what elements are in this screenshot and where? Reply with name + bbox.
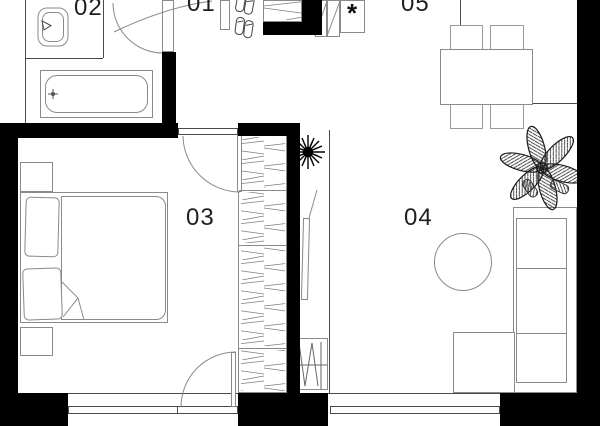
toilet-niche-wall-h [25, 58, 103, 59]
slipper [549, 179, 570, 195]
toilet [38, 8, 68, 46]
utility-marker: * [340, 0, 364, 29]
wall-bathroom-west [25, 0, 26, 123]
panel-closet-right [327, 0, 340, 37]
nightstand-bottom [20, 327, 53, 356]
toilet-niche-wall-v [103, 0, 104, 58]
dining-chair [490, 25, 524, 51]
wall-hall-closet-v [302, 0, 322, 35]
hanging-closet [263, 0, 302, 22]
sofa-seat-divider [516, 333, 567, 334]
door-leaf-bedroom [237, 135, 242, 192]
wardrobe-divider [239, 348, 286, 349]
plant-large-icon [498, 124, 585, 211]
wardrobe-column [238, 135, 287, 393]
tv-mount-line [309, 190, 317, 218]
room-label-01: 01 [187, 0, 216, 18]
wall-right-exterior [577, 0, 600, 426]
wardrobe-divider [239, 190, 286, 191]
room-label-05: 05 [401, 0, 430, 18]
zone-line-dining-h [533, 103, 577, 104]
window-bedroom [68, 406, 178, 414]
pillow [22, 267, 63, 320]
tv-strip-line [329, 130, 330, 393]
pillow [24, 197, 60, 258]
dining-chair [450, 25, 483, 51]
wall-tv [301, 218, 310, 300]
nightstand-top [20, 162, 53, 192]
floor-plan: 02 01 05 03 04 * [0, 0, 600, 426]
door-threshold-balcony [177, 406, 238, 414]
door-leaf-entrance [220, 0, 230, 30]
door-arc-bathroom [113, 3, 163, 53]
door-arc-bedroom [183, 136, 240, 192]
sofa-seat-divider [516, 268, 567, 269]
bathtub-inner [45, 75, 148, 113]
door-jamb-bathroom [162, 0, 174, 52]
wall-bathroom-south [18, 123, 178, 138]
bed-duvet [61, 196, 166, 320]
door-leaf-balcony [231, 352, 236, 407]
wall-stub-bathroom-hall [162, 52, 176, 123]
room-label-04: 04 [404, 204, 433, 232]
shoes-pair [235, 0, 255, 15]
door-threshold-bedroom [178, 128, 238, 135]
wardrobe-divider [239, 245, 286, 246]
shoes-pair [234, 17, 253, 38]
slipper [521, 178, 539, 199]
wall-pier-bottom-left [0, 393, 68, 426]
dining-table [440, 49, 533, 105]
wall-wardrobe-east [287, 123, 300, 393]
window-living [330, 406, 500, 414]
dining-chair [450, 104, 483, 129]
room-label-02: 02 [74, 0, 103, 22]
wall-corner-bottom-right [500, 393, 600, 426]
wall-left-exterior [0, 123, 18, 393]
round-coffee-table [434, 233, 492, 291]
sofa-chaise [453, 332, 515, 393]
sofa-seat [516, 218, 567, 383]
dining-chair [490, 104, 524, 129]
door-arc-balcony [181, 352, 236, 407]
room-label-03: 03 [186, 204, 215, 232]
wall-pier-bottom-mid [238, 393, 328, 426]
